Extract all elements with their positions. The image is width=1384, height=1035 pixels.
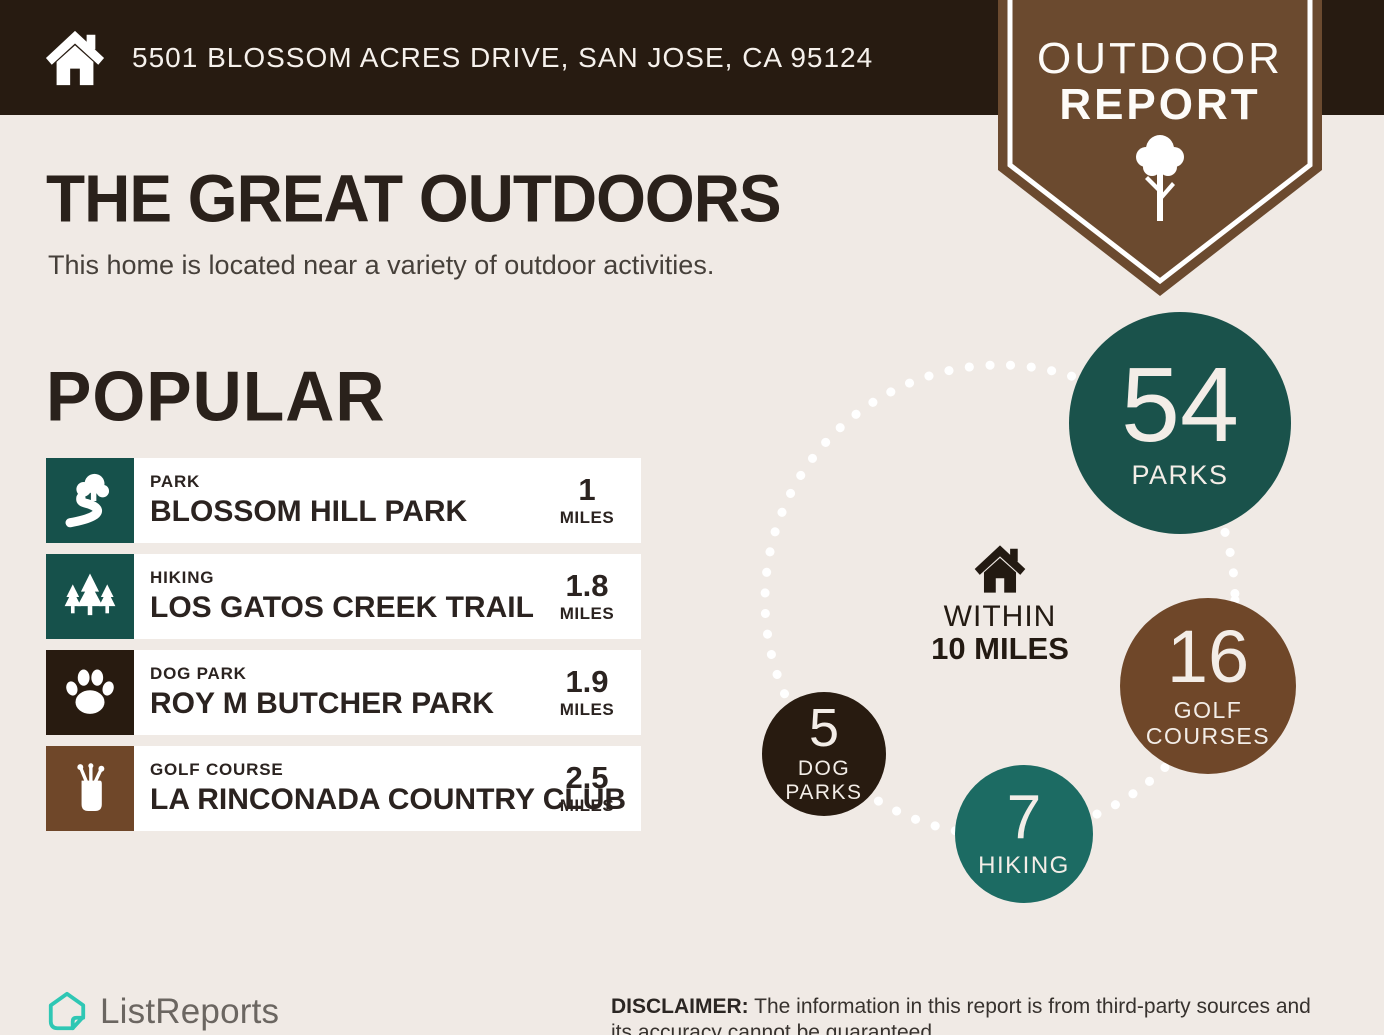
item-name: BLOSSOM HILL PARK [150,495,467,529]
outdoor-report-page: 5501 BLOSSOM ACRES DRIVE, SAN JOSE, CA 9… [0,0,1384,1035]
item-distance: 1.9 MILES [551,666,623,720]
outdoor-report-badge: OUTDOOR REPORT [998,0,1322,300]
pine-trees-icon [46,554,134,639]
listreports-logo: ListReports [46,990,279,1034]
park-icon [46,458,134,543]
disclaimer-text: DISCLAIMER: The information in this repo… [611,994,1333,1035]
item-distance: 2.5 MILES [551,762,623,816]
hiking-count: 7 [1007,789,1041,848]
bubble-hiking: 7 HIKING [955,765,1093,903]
bubble-dog-parks: 5 DOG PARKS [762,692,886,816]
parks-count: 54 [1121,355,1239,456]
list-item-hiking: HIKING LOS GATOS CREEK TRAIL 1.8 MILES [46,554,641,639]
tree-icon [1129,131,1191,227]
golf-count: 16 [1167,622,1249,692]
brand-name: ListReports [100,992,279,1032]
page-title: THE GREAT OUTDOORS [46,160,781,237]
list-item-golf: GOLF COURSE LA RINCONADA COUNTRY CLUB 2.… [46,746,641,831]
item-name: LOS GATOS CREEK TRAIL [150,591,534,625]
house-icon [973,544,1027,594]
item-category: DOG PARK [150,664,494,684]
item-distance: 1.8 MILES [551,570,623,624]
item-category: PARK [150,472,467,492]
within-label: WITHIN [880,600,1120,634]
dog-parks-label: DOG PARKS [779,757,869,805]
item-category: HIKING [150,568,534,588]
popular-heading: POPULAR [46,356,385,437]
dog-parks-count: 5 [809,703,839,754]
bubble-parks: 54 PARKS [1069,312,1291,534]
item-distance: 1 MILES [551,474,623,528]
list-item-park: PARK BLOSSOM HILL PARK 1 MILES [46,458,641,543]
item-name: LA RINCONADA COUNTRY CLUB [150,783,551,817]
item-name: ROY M BUTCHER PARK [150,687,494,721]
property-address: 5501 BLOSSOM ACRES DRIVE, SAN JOSE, CA 9… [132,42,873,74]
golf-bag-icon [46,746,134,831]
paw-icon [46,650,134,735]
page-subtitle: This home is located near a variety of o… [48,250,714,281]
hiking-label: HIKING [978,852,1070,880]
badge-title-line2: REPORT [998,80,1322,130]
parks-label: PARKS [1131,460,1228,491]
bubble-golf-courses: 16 GOLF COURSES [1120,598,1296,774]
within-miles-label: 10 MILES [880,631,1120,667]
listreports-logo-icon [46,990,88,1034]
home-icon [44,29,106,87]
list-item-dog-park: DOG PARK ROY M BUTCHER PARK 1.9 MILES [46,650,641,735]
badge-title-line1: OUTDOOR [998,34,1322,84]
popular-list: PARK BLOSSOM HILL PARK 1 MILES [46,458,641,831]
disclaimer-label: DISCLAIMER: [611,995,749,1018]
golf-label: GOLF COURSES [1143,697,1273,750]
item-category: GOLF COURSE [150,760,551,780]
